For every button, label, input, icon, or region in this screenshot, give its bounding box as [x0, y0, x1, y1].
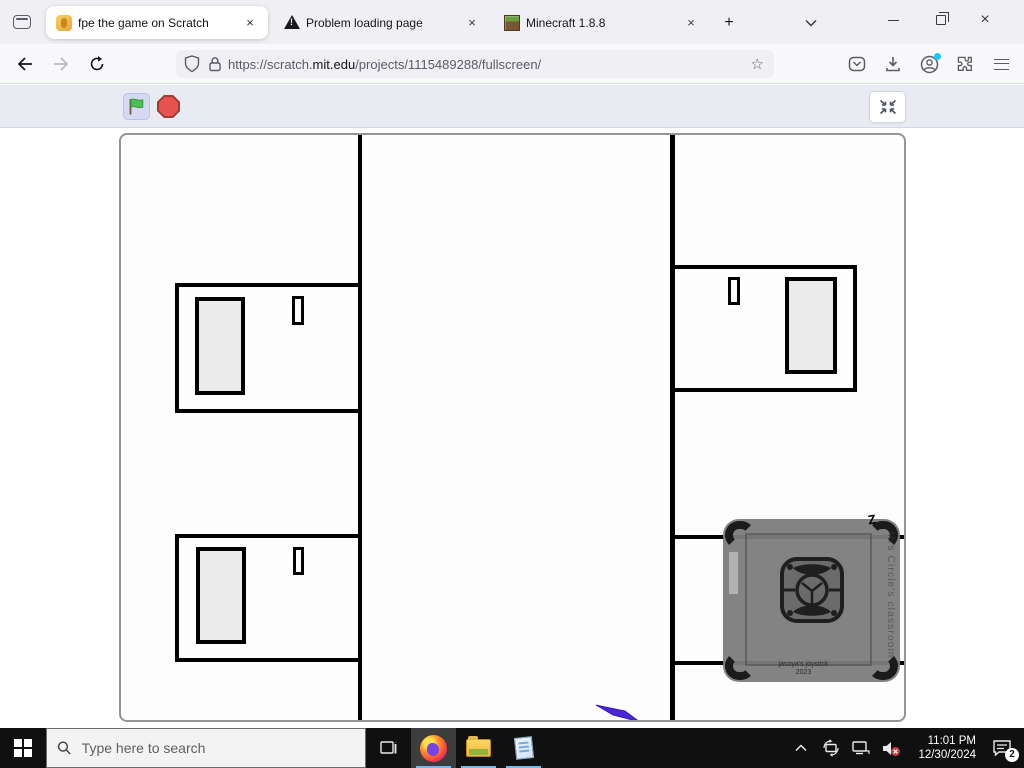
- window-top-right: [728, 277, 740, 305]
- back-button[interactable]: [10, 50, 40, 78]
- notification-center-button[interactable]: 2: [984, 728, 1020, 768]
- tab-close-icon[interactable]: ×: [681, 13, 701, 33]
- downloads-button[interactable]: [878, 50, 908, 78]
- joystick-label-line1: jasoya's joystick: [723, 661, 884, 669]
- pocket-icon: [848, 56, 866, 73]
- bookmark-star-icon[interactable]: ☆: [749, 55, 766, 73]
- joystick-side-label: Mrs Circle's classroom: [885, 531, 897, 671]
- tab-title: Problem loading page: [306, 16, 456, 30]
- forward-arrow-icon: [53, 57, 69, 71]
- scratch-player-header: [0, 85, 1024, 128]
- display-sync-icon: [821, 739, 841, 757]
- chevron-down-icon: [805, 19, 817, 27]
- joystick-label: jasoya's joystick 2023: [723, 661, 884, 677]
- minecraft-favicon: [504, 15, 520, 31]
- minimize-button[interactable]: [876, 0, 910, 40]
- tab-close-icon[interactable]: ×: [240, 13, 260, 33]
- taskbar-search-box[interactable]: [46, 728, 366, 768]
- notification-count-badge: 2: [1005, 748, 1019, 762]
- back-arrow-icon: [17, 57, 33, 71]
- tracking-shield-icon: [184, 55, 200, 73]
- file-explorer-icon: [466, 739, 491, 757]
- firefox-icon: [420, 735, 447, 762]
- firefox-view-icon: [13, 15, 31, 29]
- url-path: /projects/1115489288/fullscreen/: [355, 57, 541, 72]
- joystick-overlay-sprite[interactable]: Z Mrs Circle's classroom jasoya's joysti…: [723, 519, 900, 682]
- door-bottom-left: [196, 547, 246, 644]
- tab-minecraft[interactable]: Minecraft 1.8.8 ×: [494, 6, 709, 39]
- tray-display-sync-button[interactable]: [818, 728, 844, 768]
- tab-list-chevron-button[interactable]: [796, 8, 826, 37]
- url-domain: mit.edu: [313, 57, 356, 72]
- navigation-toolbar: https://scratch.mit.edu/projects/1115489…: [0, 44, 1024, 84]
- download-icon: [885, 56, 901, 73]
- clock-time: 11:01 PM: [908, 734, 976, 748]
- network-ethernet-icon: [851, 740, 871, 756]
- scratch-favicon: [56, 15, 72, 31]
- menu-button[interactable]: [986, 50, 1016, 78]
- taskbar-explorer-button[interactable]: [456, 728, 501, 768]
- puzzle-icon: [956, 55, 974, 73]
- windows-taskbar: 11:01 PM 12/30/2024 2: [0, 728, 1024, 768]
- pen-sprite[interactable]: [595, 702, 643, 722]
- tab-title: Minecraft 1.8.8: [526, 16, 675, 30]
- forward-button[interactable]: [46, 50, 76, 78]
- search-icon: [57, 740, 72, 756]
- address-bar[interactable]: https://scratch.mit.edu/projects/1115489…: [176, 50, 774, 78]
- system-tray: 11:01 PM 12/30/2024 2: [788, 728, 1024, 768]
- windows-logo-icon: [14, 739, 32, 757]
- tray-volume-button[interactable]: [878, 728, 904, 768]
- restore-icon: [936, 15, 946, 25]
- close-window-button[interactable]: ×: [968, 0, 1002, 40]
- stage-area: Z Mrs Circle's classroom jasoya's joysti…: [0, 128, 1024, 728]
- tab-title: fpe the game on Scratch: [78, 16, 234, 30]
- firefox-view-button[interactable]: [8, 9, 36, 35]
- search-input[interactable]: [82, 740, 355, 756]
- start-button[interactable]: [0, 728, 46, 768]
- notepad-icon: [513, 736, 533, 760]
- account-notification-dot: [934, 53, 941, 60]
- green-flag-button[interactable]: [123, 93, 150, 120]
- window-bottom-left: [293, 547, 304, 575]
- url-prefix: https://scratch.: [228, 57, 313, 72]
- reload-icon: [89, 56, 105, 72]
- door-top-left: [195, 297, 245, 395]
- exit-fullscreen-button[interactable]: [869, 91, 906, 123]
- hamburger-menu-icon: [994, 59, 1009, 70]
- reload-button[interactable]: [82, 50, 112, 78]
- url-text: https://scratch.mit.edu/projects/1115489…: [228, 57, 749, 72]
- account-button[interactable]: [914, 50, 944, 78]
- stop-button[interactable]: [157, 95, 180, 118]
- minimize-icon: [888, 20, 899, 21]
- taskbar-firefox-button[interactable]: [411, 728, 456, 768]
- green-flag-icon: [127, 97, 146, 116]
- extensions-button[interactable]: [950, 50, 980, 78]
- collapse-icon: [879, 99, 897, 115]
- clock-date: 12/30/2024: [908, 748, 976, 762]
- speaker-muted-icon: [881, 740, 901, 757]
- warning-icon: [284, 15, 300, 29]
- joystick-label-line2: 2023: [723, 669, 884, 677]
- browser-window: fpe the game on Scratch × Problem loadin…: [0, 0, 1024, 768]
- window-behind-joystick: [729, 552, 738, 594]
- tab-problem-loading[interactable]: Problem loading page ×: [274, 6, 490, 39]
- task-view-icon: [380, 740, 398, 756]
- new-tab-button[interactable]: +: [714, 8, 744, 37]
- tab-close-icon[interactable]: ×: [462, 13, 482, 33]
- stop-octagon-icon: [157, 95, 180, 118]
- scratch-stage[interactable]: Z Mrs Circle's classroom jasoya's joysti…: [119, 133, 906, 722]
- joystick-dpad-icon[interactable]: [779, 555, 845, 625]
- door-top-right: [785, 277, 837, 374]
- joystick-corner-letter: Z: [867, 511, 877, 527]
- tab-scratch[interactable]: fpe the game on Scratch ×: [46, 6, 268, 39]
- tray-chevron-up-button[interactable]: [788, 728, 814, 768]
- tab-bar: fpe the game on Scratch × Problem loadin…: [0, 0, 1024, 44]
- lock-icon: [208, 56, 222, 72]
- taskbar-notepad-button[interactable]: [501, 728, 546, 768]
- pocket-button[interactable]: [842, 50, 872, 78]
- restore-button[interactable]: [924, 0, 958, 40]
- chevron-up-icon: [795, 744, 807, 752]
- window-top-left: [292, 296, 304, 325]
- tray-network-button[interactable]: [848, 728, 874, 768]
- taskbar-clock[interactable]: 11:01 PM 12/30/2024: [908, 734, 980, 762]
- task-view-button[interactable]: [366, 728, 411, 768]
